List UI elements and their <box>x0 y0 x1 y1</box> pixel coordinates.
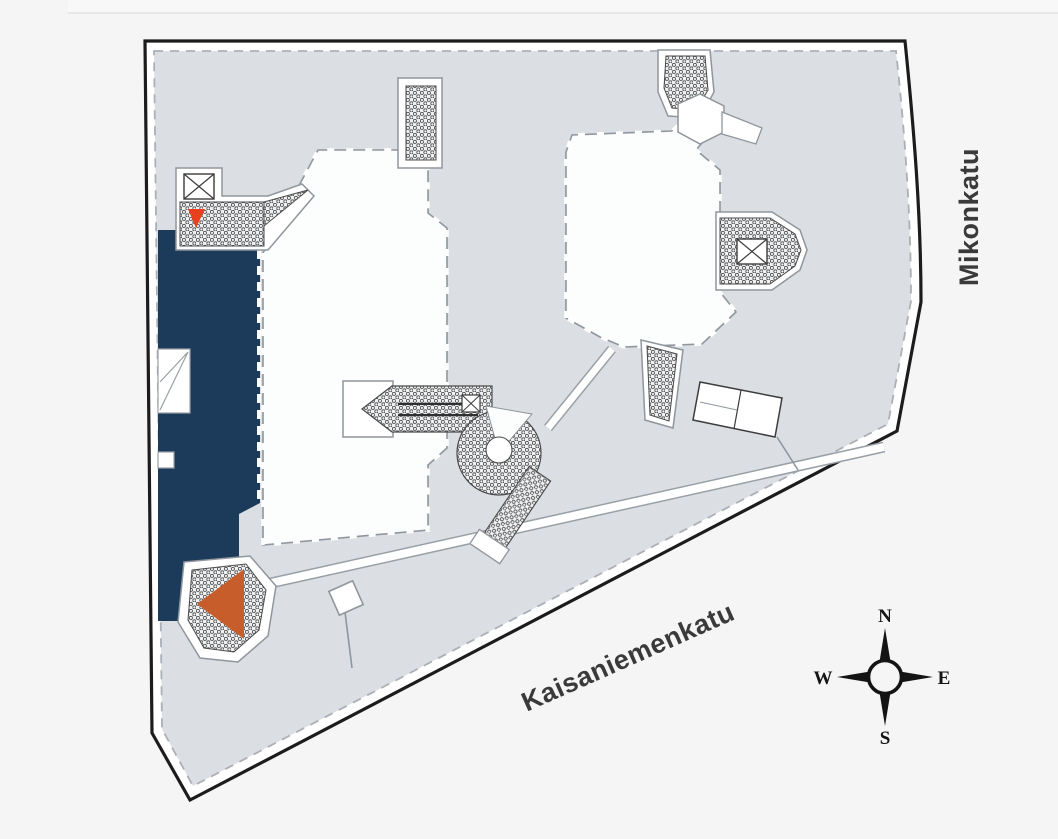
elevator-icon <box>737 239 767 264</box>
street-label-kaisaniemenkatu: Kaisaniemenkatu <box>517 597 739 718</box>
compass-n-label: N <box>878 606 892 627</box>
street-label-mikonkatu: Mikonkatu <box>954 148 984 286</box>
unit-notch <box>158 452 174 468</box>
compass-rose: N E S W <box>814 606 951 749</box>
elevator-icon <box>462 395 480 412</box>
compass-circle <box>869 661 902 694</box>
floor-plan-page: Mikonkatu Kaisaniemenkatu N E S W <box>0 0 1058 839</box>
compass-w-label: W <box>814 668 833 689</box>
floor-plan-svg: Mikonkatu Kaisaniemenkatu N E S W <box>0 0 1058 839</box>
compass-e-label: E <box>938 668 951 689</box>
unit-stair-notch <box>158 349 190 413</box>
elevator-icon <box>184 174 214 199</box>
compass-s-label: S <box>880 728 891 749</box>
stair-core-north <box>398 78 442 168</box>
top-strip <box>68 0 1058 13</box>
